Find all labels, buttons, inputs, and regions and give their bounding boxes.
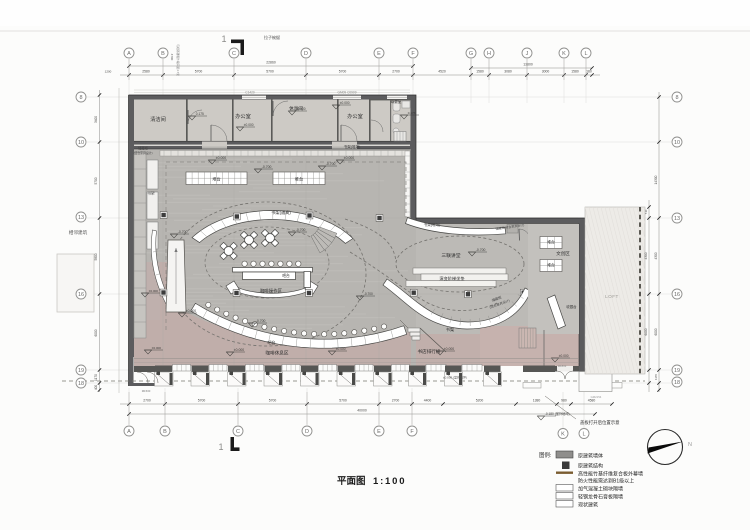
svg-text:-0.700: -0.700 — [296, 228, 306, 232]
svg-text:文创区: 文创区 — [556, 250, 570, 257]
svg-text:1170: 1170 — [94, 374, 98, 381]
svg-text:1580: 1580 — [476, 70, 484, 74]
svg-text:D: D — [305, 429, 309, 435]
svg-text:D: D — [304, 51, 308, 57]
svg-text:±0.000: ±0.000 — [344, 156, 354, 160]
svg-text:高性能竹基纤维复合板外幕墙: 高性能竹基纤维复合板外幕墙 — [578, 471, 643, 478]
svg-text:GM09 C0909: GM09 C0909 — [338, 90, 357, 94]
svg-text:±0.000: ±0.000 — [444, 347, 454, 351]
svg-text:-0.700: -0.700 — [326, 162, 336, 166]
svg-text:8: 8 — [79, 95, 82, 101]
svg-text:盖板打开后位置示意: 盖板打开后位置示意 — [580, 419, 620, 426]
svg-text:40000: 40000 — [357, 409, 367, 413]
svg-text:K: K — [562, 51, 566, 57]
svg-text:2700: 2700 — [392, 70, 400, 74]
svg-text:防火性能需达到B1级以上: 防火性能需达到B1级以上 — [578, 478, 634, 485]
svg-text:A: A — [127, 429, 131, 435]
svg-text:16: 16 — [674, 292, 680, 298]
svg-text:±0.000: ±0.000 — [340, 101, 350, 105]
svg-text:堆台: 堆台 — [547, 263, 555, 268]
svg-text:堆台: 堆台 — [547, 240, 555, 245]
svg-text:堆台: 堆台 — [212, 176, 220, 183]
svg-text:4300: 4300 — [644, 252, 648, 259]
svg-text:书架(通高): 书架(通高) — [271, 209, 291, 216]
svg-text:5700: 5700 — [269, 399, 277, 403]
svg-text:现状建筑: 现状建筑 — [578, 502, 598, 509]
svg-text:A: A — [127, 51, 131, 57]
svg-text:相邻建筑: 相邻建筑 — [69, 229, 88, 236]
svg-text:1: 1 — [218, 442, 223, 452]
svg-text:0.175: 0.175 — [196, 112, 204, 116]
svg-text:14300: 14300 — [654, 175, 658, 184]
svg-text:±0.000: ±0.000 — [244, 123, 254, 127]
svg-text:平面图: 平面图 — [337, 476, 366, 487]
svg-text:±0.000: ±0.000 — [186, 309, 196, 313]
svg-text:原建筑结构: 原建筑结构 — [578, 463, 603, 470]
svg-text:N: N — [688, 442, 692, 448]
svg-text:±0.000 (室外地坪): ±0.000 (室外地坪) — [443, 375, 467, 380]
svg-text:吧台: 吧台 — [268, 339, 276, 345]
svg-text:±0.000: ±0.000 — [216, 156, 226, 160]
svg-text:吧台: 吧台 — [282, 273, 290, 278]
svg-text:J: J — [526, 51, 529, 57]
svg-text:10: 10 — [78, 140, 84, 146]
svg-text:6000: 6000 — [654, 328, 658, 335]
svg-text:E: E — [377, 429, 381, 435]
svg-text:1380: 1380 — [533, 399, 541, 403]
svg-text:-0.700: -0.700 — [476, 248, 486, 252]
svg-text:3000: 3000 — [542, 70, 550, 74]
svg-text:办公室: 办公室 — [235, 112, 251, 120]
svg-text:B: B — [163, 429, 167, 435]
svg-text:5700: 5700 — [195, 70, 203, 74]
svg-text:3400: 3400 — [94, 116, 98, 123]
svg-text:6000: 6000 — [94, 329, 98, 336]
svg-text:书架(堆场): 书架(堆场) — [344, 144, 361, 149]
svg-text:3080: 3080 — [504, 70, 512, 74]
svg-text:M1530: M1530 — [142, 389, 151, 393]
svg-text:18: 18 — [674, 380, 680, 386]
svg-text:10: 10 — [674, 140, 680, 146]
svg-text:图例:: 图例: — [539, 451, 551, 459]
svg-text:2580: 2580 — [142, 70, 150, 74]
svg-text:18: 18 — [78, 381, 84, 387]
svg-text:E: E — [377, 51, 381, 57]
svg-text:M1832: M1832 — [558, 364, 567, 368]
svg-text:L: L — [584, 51, 587, 57]
svg-text:-0.700: -0.700 — [178, 230, 188, 234]
svg-text:LOFT: LOFT — [605, 294, 619, 299]
svg-text:H: H — [487, 51, 491, 57]
svg-text:咖啡操作区: 咖啡操作区 — [260, 288, 283, 295]
svg-text:±0.000: ±0.000 — [296, 107, 306, 111]
svg-text:堆台: 堆台 — [295, 176, 303, 183]
svg-text:4400: 4400 — [424, 399, 432, 403]
svg-text:4700: 4700 — [170, 54, 174, 61]
svg-text:0.175: 0.175 — [408, 111, 416, 115]
svg-text:22860: 22860 — [266, 61, 276, 65]
svg-text:清洁间: 清洁间 — [150, 115, 166, 123]
svg-text:4580: 4580 — [588, 399, 596, 403]
svg-text:2700: 2700 — [143, 399, 151, 403]
svg-text:储藏柜: 储藏柜 — [138, 146, 149, 151]
svg-text:L: L — [582, 432, 585, 438]
svg-text:16: 16 — [78, 292, 84, 298]
svg-text:1580: 1580 — [571, 70, 579, 74]
svg-text:13800: 13800 — [523, 63, 533, 67]
svg-text:办公室: 办公室 — [347, 112, 363, 120]
svg-text:书架: 书架 — [446, 326, 454, 333]
svg-text:1:100: 1:100 — [373, 476, 406, 487]
svg-text:180: 180 — [586, 70, 592, 74]
svg-text:5700: 5700 — [339, 399, 347, 403]
svg-text:5700: 5700 — [94, 177, 98, 184]
svg-text:(结合家具设计): (结合家具设计) — [133, 150, 152, 155]
svg-text:19: 19 — [78, 368, 84, 374]
svg-text:5700: 5700 — [339, 70, 347, 74]
svg-text:8: 8 — [675, 95, 678, 101]
svg-text:收银台: 收银台 — [566, 304, 577, 309]
svg-text:B: B — [161, 51, 165, 57]
svg-text:-0.180 (室外地坪): -0.180 (室外地坪) — [545, 411, 570, 416]
svg-text:书店排行榜: 书店排行榜 — [418, 348, 441, 355]
svg-text:5700: 5700 — [198, 399, 206, 403]
svg-text:轻钢龙骨石膏板隔墙: 轻钢龙骨石膏板隔墙 — [578, 494, 623, 501]
svg-text:±0.000: ±0.000 — [234, 348, 244, 352]
svg-text:13: 13 — [674, 216, 680, 222]
svg-text:C1420: C1420 — [245, 90, 255, 94]
svg-text:5800: 5800 — [94, 253, 98, 260]
svg-text:2700: 2700 — [392, 399, 400, 403]
svg-text:1200: 1200 — [105, 70, 112, 74]
svg-text:5700: 5700 — [266, 70, 274, 74]
svg-text:原建筑墙体: 原建筑墙体 — [578, 453, 603, 460]
svg-text:4300: 4300 — [654, 252, 658, 259]
svg-text:C: C — [236, 429, 240, 435]
svg-text:K: K — [561, 432, 565, 438]
svg-text:±0.000: ±0.000 — [559, 354, 569, 358]
svg-text:980: 980 — [561, 399, 567, 403]
svg-text:-0.700: -0.700 — [262, 165, 272, 169]
svg-text:±0.000: ±0.000 — [336, 347, 346, 351]
svg-text:G: G — [469, 51, 473, 57]
svg-text:400: 400 — [94, 385, 98, 391]
svg-text:书架: 书架 — [147, 191, 155, 196]
svg-text:1170: 1170 — [654, 374, 658, 380]
svg-text:C: C — [232, 51, 236, 57]
svg-text:母婴室: 母婴室 — [391, 99, 402, 104]
svg-text:13: 13 — [78, 215, 84, 221]
svg-text:4520: 4520 — [438, 70, 446, 74]
svg-text:演变阶梯坐垫: 演变阶梯坐垫 — [439, 275, 465, 282]
svg-text:加气混凝土砌块隔墙: 加气混凝土砌块隔墙 — [578, 486, 623, 493]
svg-text:拉子蜿蜒: 拉子蜿蜒 — [264, 34, 280, 40]
svg-text:三联讲堂: 三联讲堂 — [441, 252, 460, 259]
svg-text:1: 1 — [221, 34, 226, 44]
svg-text:-0.700: -0.700 — [364, 292, 373, 296]
svg-text:±0.000: ±0.000 — [149, 289, 158, 293]
svg-text:19: 19 — [674, 368, 680, 374]
svg-text:-0.700: -0.700 — [256, 319, 266, 323]
svg-text:6000: 6000 — [644, 328, 648, 335]
svg-text:5200: 5200 — [476, 399, 484, 403]
svg-text:书架(堆场): 书架(堆场) — [424, 222, 441, 227]
svg-text:±0.000: ±0.000 — [152, 346, 161, 350]
svg-text:与相邻建筑外墙间距4.7米: 与相邻建筑外墙间距4.7米 — [176, 44, 180, 76]
svg-text:710: 710 — [644, 209, 648, 214]
svg-text:咖啡休息区: 咖啡休息区 — [266, 350, 289, 357]
